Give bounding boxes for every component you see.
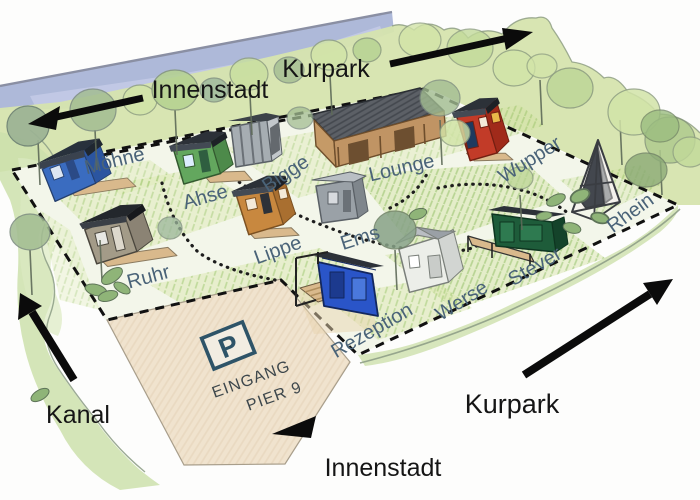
svg-text:Innenstadt: Innenstadt bbox=[152, 76, 269, 104]
svg-text:Kanal: Kanal bbox=[46, 401, 110, 429]
svg-text:Innenstadt: Innenstadt bbox=[325, 454, 442, 482]
svg-text:Kurpark: Kurpark bbox=[465, 389, 560, 419]
svg-text:Kurpark: Kurpark bbox=[282, 55, 370, 83]
